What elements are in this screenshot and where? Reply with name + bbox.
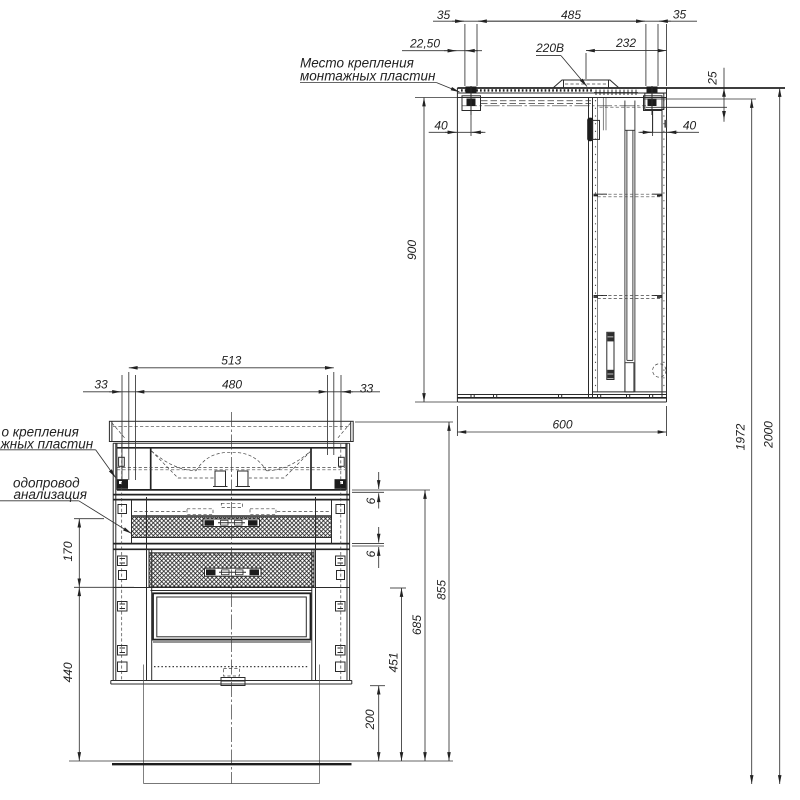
svg-text:6: 6 [364,550,378,557]
svg-text:22,50: 22,50 [409,37,440,51]
svg-text:6: 6 [364,497,378,504]
svg-text:232: 232 [615,36,636,50]
svg-text:440: 440 [61,662,75,682]
svg-text:451: 451 [387,652,401,672]
svg-text:35: 35 [437,8,451,22]
svg-text:600: 600 [552,418,572,432]
svg-text:анализация: анализация [14,487,88,502]
svg-text:900: 900 [405,240,419,260]
svg-text:жных пластин: жных пластин [0,436,94,451]
svg-text:2000: 2000 [762,421,776,449]
svg-text:монтажных пластин: монтажных пластин [300,69,436,84]
svg-text:855: 855 [435,580,449,600]
svg-text:40: 40 [683,119,697,133]
svg-text:685: 685 [410,615,424,635]
svg-text:170: 170 [61,541,75,561]
svg-text:25: 25 [706,71,720,86]
svg-text:513: 513 [221,354,241,368]
svg-text:485: 485 [561,8,581,22]
svg-text:200: 200 [363,709,377,730]
svg-text:40: 40 [434,119,448,133]
svg-text:480: 480 [222,378,242,392]
svg-text:1972: 1972 [734,423,748,450]
svg-text:33: 33 [94,378,108,392]
svg-text:33: 33 [360,382,374,396]
svg-text:220В: 220В [535,41,564,55]
svg-text:35: 35 [673,8,687,22]
